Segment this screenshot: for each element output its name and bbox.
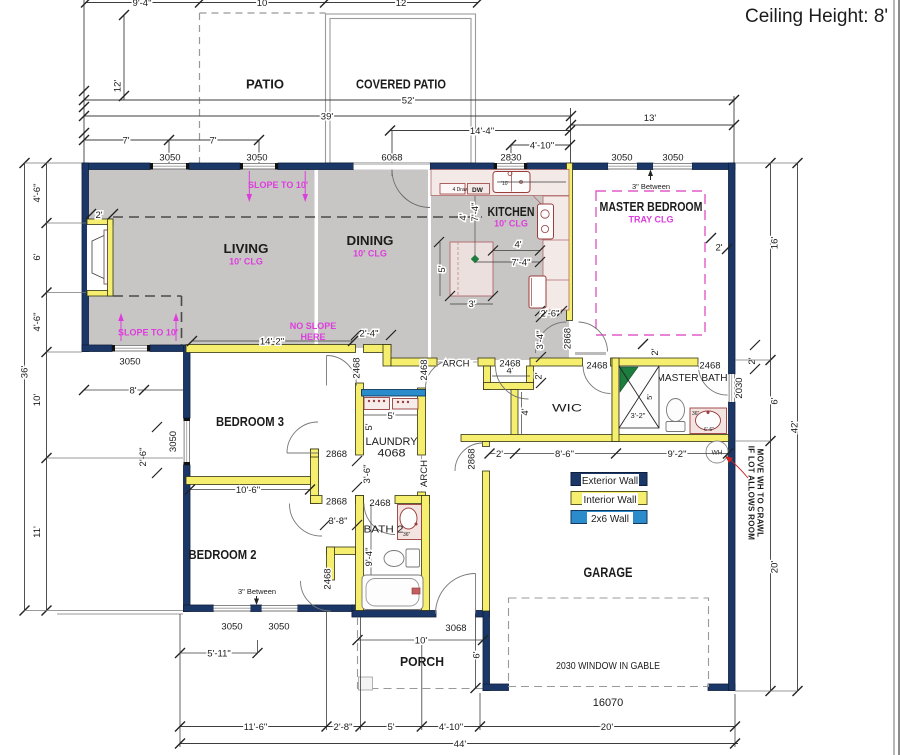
svg-text:3050: 3050	[221, 622, 242, 633]
svg-text:2830: 2830	[500, 153, 521, 164]
svg-text:BEDROOM 2: BEDROOM 2	[189, 547, 257, 562]
svg-text:3'-6": 3'-6"	[362, 465, 373, 484]
svg-text:3068: 3068	[445, 623, 466, 634]
svg-text:12: 12	[396, 0, 407, 9]
svg-text:3" Between: 3" Between	[238, 587, 276, 596]
svg-text:DW: DW	[472, 187, 484, 194]
svg-text:2x6 Wall: 2x6 Wall	[591, 514, 629, 525]
svg-text:SLOPE TO 10': SLOPE TO 10'	[118, 328, 178, 338]
svg-text:IF LOT ALLOWS ROOM: IF LOT ALLOWS ROOM	[747, 446, 756, 540]
svg-text:DINING: DINING	[347, 233, 394, 248]
svg-text:7': 7'	[209, 136, 216, 147]
svg-text:4068: 4068	[378, 448, 406, 460]
svg-text:PATIO: PATIO	[246, 78, 284, 92]
svg-text:3050: 3050	[119, 357, 140, 368]
svg-text:10' CLG: 10' CLG	[494, 219, 528, 229]
svg-text:2468: 2468	[499, 359, 520, 370]
svg-text:6068: 6068	[381, 153, 402, 164]
svg-text:14'-2": 14'-2"	[260, 337, 284, 348]
svg-text:NO SLOPE: NO SLOPE	[290, 321, 337, 331]
svg-text:2468: 2468	[323, 568, 334, 589]
svg-text:5': 5'	[387, 722, 394, 733]
svg-text:42': 42'	[790, 421, 801, 434]
svg-text:20': 20'	[601, 722, 614, 733]
svg-text:2'-8": 2'-8"	[334, 722, 353, 733]
svg-text:10': 10'	[32, 394, 43, 407]
svg-text:6': 6'	[32, 253, 43, 260]
svg-text:MASTER BATH: MASTER BATH	[657, 372, 728, 384]
svg-text:Ceiling Height: 8': Ceiling Height: 8'	[745, 6, 888, 27]
svg-text:39': 39'	[321, 112, 334, 123]
svg-text:4'-10": 4'-10"	[530, 141, 554, 152]
svg-text:7'-4": 7'-4"	[512, 258, 531, 269]
svg-text:6': 6'	[472, 651, 483, 658]
svg-text:13': 13'	[644, 113, 657, 124]
svg-text:10' CLG: 10' CLG	[229, 257, 263, 267]
svg-text:12': 12'	[113, 80, 124, 93]
svg-text:2': 2'	[95, 210, 102, 221]
svg-text:MOVE WH TO CRAWL: MOVE WH TO CRAWL	[756, 449, 765, 538]
svg-text:2': 2'	[715, 243, 722, 254]
svg-text:LAUNDRY: LAUNDRY	[366, 436, 419, 448]
svg-text:4': 4'	[458, 213, 469, 220]
svg-text:3050: 3050	[159, 153, 180, 164]
svg-text:2468: 2468	[699, 361, 720, 372]
svg-text:2030 WINDOW IN GABLE: 2030 WINDOW IN GABLE	[556, 660, 660, 672]
svg-text:2868: 2868	[326, 449, 347, 460]
svg-text:11': 11'	[32, 526, 43, 538]
svg-text:4'-6": 4'-6"	[32, 313, 43, 332]
svg-text:36': 36'	[20, 366, 31, 379]
svg-text:3'-4": 3'-4"	[535, 331, 546, 350]
svg-text:4'-10": 4'-10"	[439, 722, 463, 733]
svg-text:ARCH: ARCH	[419, 460, 430, 487]
svg-text:LIVING: LIVING	[224, 241, 269, 256]
svg-text:2': 2'	[747, 357, 758, 364]
svg-text:20': 20'	[770, 561, 781, 574]
svg-text:3050: 3050	[611, 153, 632, 164]
svg-text:6'-6": 6'-6"	[704, 427, 714, 433]
svg-text:3" Between: 3" Between	[632, 182, 670, 191]
svg-text:8'-6": 8'-6"	[555, 449, 574, 460]
svg-text:5': 5'	[387, 411, 394, 422]
svg-text:14'-4": 14'-4"	[470, 126, 494, 137]
svg-text:5': 5'	[645, 394, 654, 400]
svg-text:BATH 2: BATH 2	[364, 525, 404, 536]
svg-text:4': 4'	[514, 240, 521, 251]
svg-text:10': 10'	[415, 636, 428, 647]
svg-text:GARAGE: GARAGE	[584, 565, 633, 580]
svg-text:5': 5'	[364, 423, 375, 430]
svg-text:44': 44'	[454, 739, 467, 750]
svg-text:TRAY CLG: TRAY CLG	[628, 215, 673, 225]
svg-text:5': 5'	[437, 265, 448, 272]
svg-text:2': 2'	[534, 372, 545, 379]
svg-text:KITCHEN: KITCHEN	[488, 205, 535, 219]
svg-text:10' CLG: 10' CLG	[353, 249, 387, 259]
svg-text:2868: 2868	[326, 497, 347, 508]
svg-text:10: 10	[257, 0, 268, 9]
svg-text:4': 4'	[520, 408, 531, 415]
svg-text:36": 36"	[403, 532, 411, 538]
svg-text:Interior Wall: Interior Wall	[584, 495, 637, 506]
svg-text:3050: 3050	[246, 153, 267, 164]
svg-text:9'-4": 9'-4"	[364, 548, 375, 567]
svg-text:6': 6'	[770, 397, 781, 404]
svg-text:3'-8": 3'-8"	[329, 516, 348, 527]
svg-text:8': 8'	[129, 386, 136, 397]
svg-text:9'-4": 9'-4"	[133, 0, 152, 9]
svg-text:WIC: WIC	[552, 403, 582, 415]
svg-text:52': 52'	[402, 96, 415, 107]
svg-text:2': 2'	[496, 449, 503, 460]
svg-text:Exterior Wall: Exterior Wall	[582, 476, 638, 487]
svg-text:HERE: HERE	[300, 332, 325, 342]
svg-text:2868: 2868	[467, 448, 478, 469]
svg-text:3050: 3050	[662, 153, 683, 164]
svg-text:WH: WH	[712, 450, 723, 457]
svg-text:3'-2": 3'-2"	[631, 411, 646, 420]
svg-text:7': 7'	[122, 136, 129, 147]
svg-text:16': 16'	[770, 237, 781, 250]
svg-text:2468: 2468	[352, 357, 363, 378]
svg-text:2'-4": 2'-4"	[360, 329, 379, 340]
svg-text:5'-11": 5'-11"	[207, 649, 231, 660]
svg-text:3050: 3050	[168, 431, 179, 452]
svg-text:11'-6": 11'-6"	[244, 722, 268, 733]
svg-text:2468: 2468	[369, 498, 390, 509]
svg-text:2468: 2468	[586, 361, 607, 372]
svg-text:ARCH: ARCH	[443, 359, 470, 370]
svg-text:2'-6": 2'-6"	[138, 448, 149, 467]
svg-text:4'-6": 4'-6"	[32, 184, 43, 203]
svg-text:16070: 16070	[593, 697, 624, 709]
svg-text:COVERED PATIO: COVERED PATIO	[356, 78, 446, 92]
svg-text:MASTER BEDROOM: MASTER BEDROOM	[600, 200, 703, 214]
svg-text:2868: 2868	[563, 328, 574, 349]
svg-text:3050: 3050	[268, 622, 289, 633]
svg-text:9'-2": 9'-2"	[668, 449, 687, 460]
svg-text:2468: 2468	[419, 359, 430, 380]
svg-text:2': 2'	[650, 348, 661, 355]
svg-text:36": 36"	[692, 411, 700, 417]
svg-text:SLOPE TO 10': SLOPE TO 10'	[248, 180, 308, 190]
svg-text:3': 3'	[468, 299, 475, 310]
svg-text:7'-4": 7'-4"	[470, 203, 481, 222]
svg-text:2030: 2030	[734, 377, 745, 398]
svg-text:10'-6": 10'-6"	[236, 485, 260, 496]
svg-text:BEDROOM 3: BEDROOM 3	[216, 414, 284, 429]
